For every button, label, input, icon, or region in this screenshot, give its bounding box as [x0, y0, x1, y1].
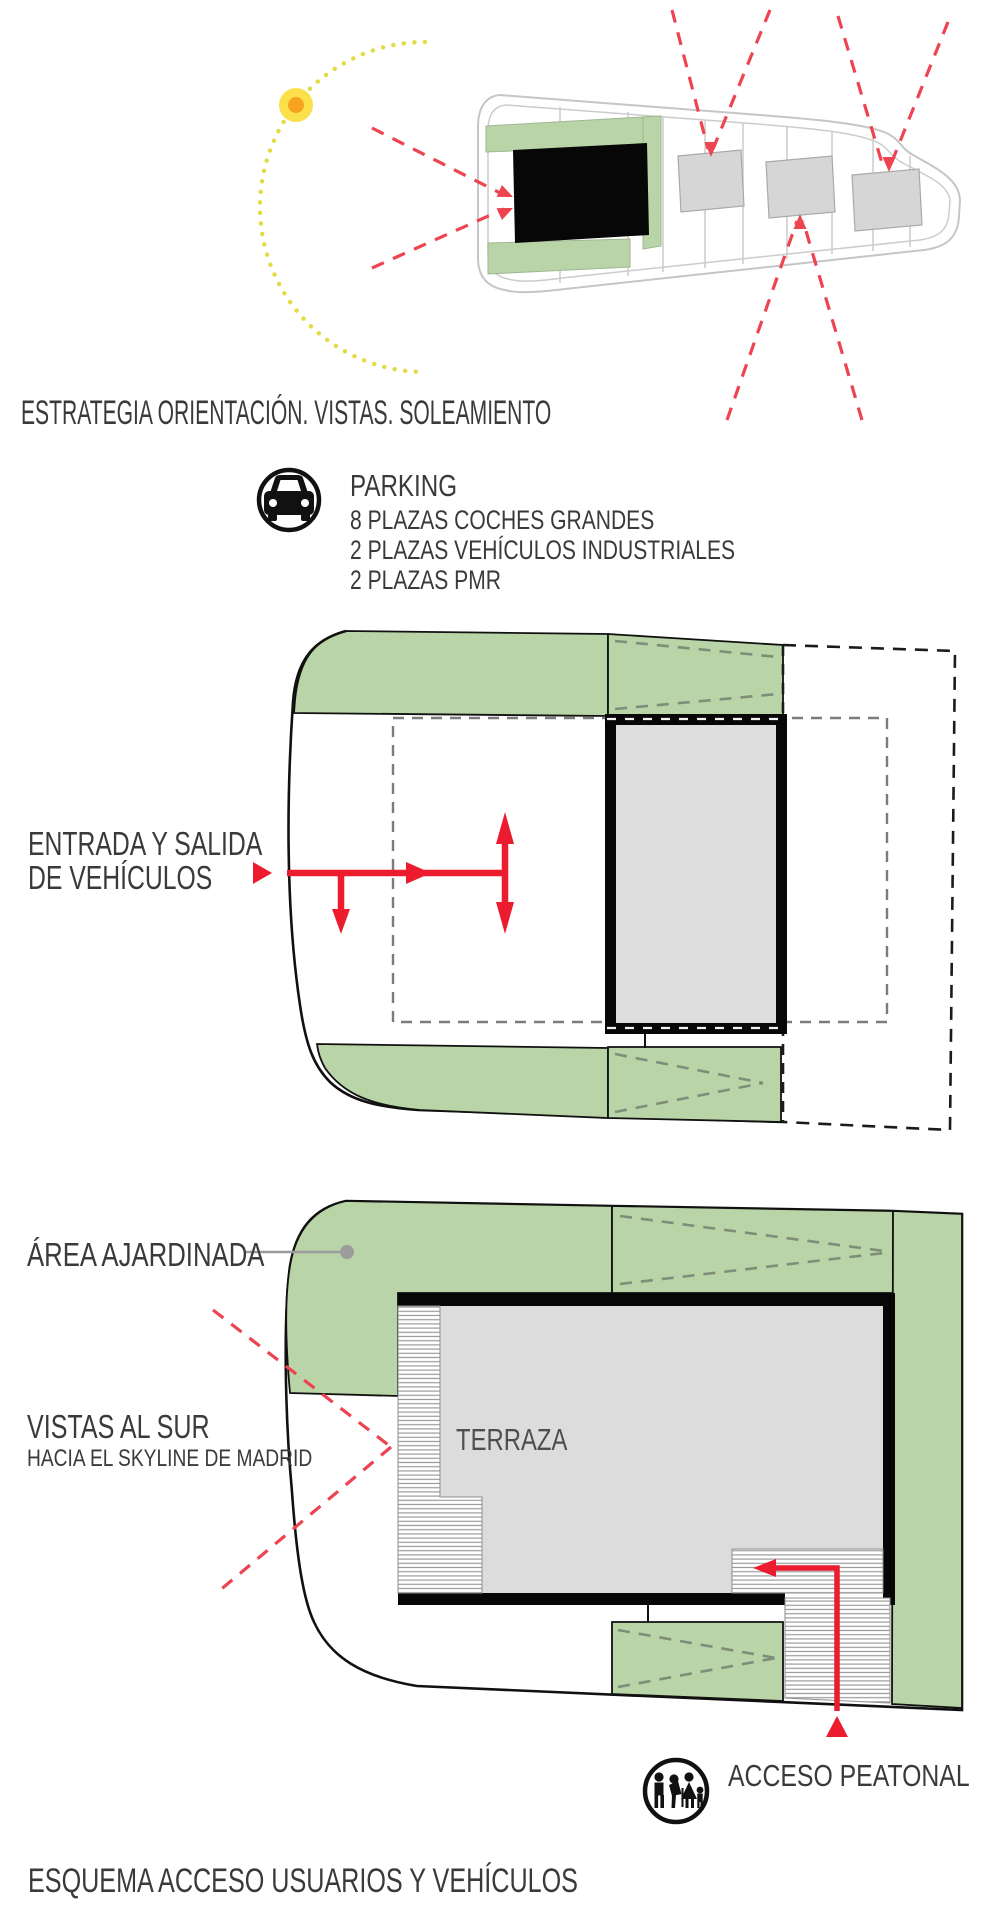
garden-area-top-mid [612, 1206, 893, 1293]
entry-porch-hatch [732, 1549, 883, 1593]
vehicle-entry-label-line2: DE VEHÍCULOS [28, 861, 262, 895]
diagrams-canvas [0, 0, 987, 1920]
vehicle-entry-arrows [253, 812, 514, 934]
vehicle-entry-label: ENTRADA Y SALIDA DE VEHÍCULOS [28, 827, 262, 894]
building-volume [605, 714, 787, 1034]
sun-icon [279, 88, 313, 122]
views-south-sublabel: HACIA EL SKYLINE DE MADRID [27, 1447, 312, 1471]
orientation-diagram-title: ESTRATEGIA ORIENTACIÓN. VISTAS. SOLEAMIE… [21, 396, 551, 431]
garden-area-right-band [892, 1211, 962, 1708]
neighbor-building-2 [766, 156, 835, 218]
parking-title: PARKING [350, 470, 457, 502]
parking-line-1: 8 PLAZAS COCHES GRANDES [350, 507, 654, 535]
access-diagram-title: ESQUEMA ACCESO USUARIOS Y VEHÍCULOS [28, 1864, 578, 1899]
garden-area-top-right [608, 634, 783, 716]
family-pedestrians-icon [645, 1760, 707, 1822]
car-icon [259, 470, 319, 530]
garden-area-bottom [612, 1622, 783, 1701]
garden-area-top-left [294, 631, 608, 716]
views-south-label: VISTAS AL SUR [27, 1410, 210, 1444]
sun-path-arc [260, 42, 425, 372]
pedestrian-access-diagram [213, 1201, 962, 1822]
orientation-diagram [260, 10, 960, 420]
pedestrian-access-label: ACCESO PEATONAL [728, 1760, 970, 1792]
project-building-black [513, 143, 649, 243]
terrace-label: TERRAZA [456, 1424, 567, 1456]
garden-area-bottom-left [317, 1044, 608, 1118]
parking-line-3: 2 PLAZAS PMR [350, 567, 501, 595]
garden-area-label: ÁREA AJARDINADA [27, 1238, 264, 1272]
neighbor-building-1 [678, 150, 744, 212]
parking-line-2: 2 PLAZAS VEHÍCULOS INDUSTRIALES [350, 537, 735, 565]
vehicle-entry-label-line1: ENTRADA Y SALIDA [28, 827, 262, 861]
vehicle-access-diagram [253, 631, 955, 1130]
site-strategy-diagrams-page: ESTRATEGIA ORIENTACIÓN. VISTAS. SOLEAMIE… [0, 0, 987, 1920]
neighbor-building-3 [852, 169, 922, 231]
garden-area-bottom-right [608, 1047, 781, 1122]
